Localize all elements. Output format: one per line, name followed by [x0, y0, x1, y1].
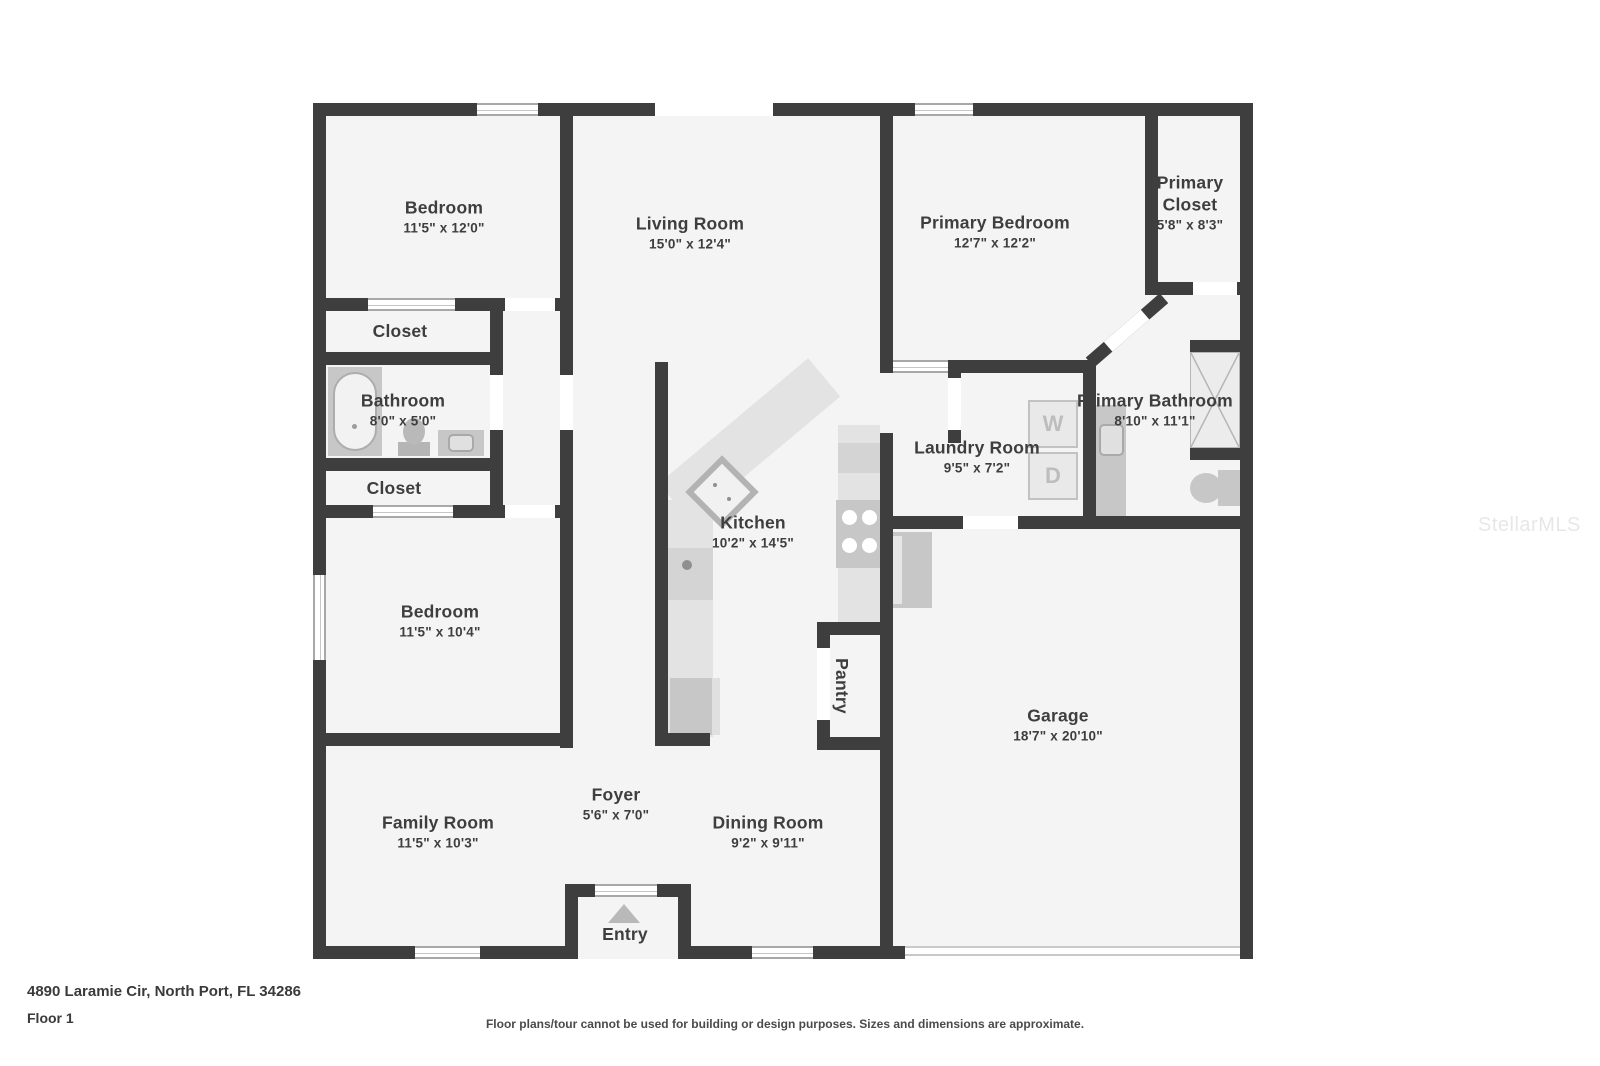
room-label-bathroom: Bathroom 8'0" x 5'0": [361, 390, 445, 431]
room-label-dining-room: Dining Room 9'2" x 9'11": [712, 812, 823, 853]
door-garage: [963, 516, 1018, 529]
door-pantry: [817, 648, 830, 720]
garage-door: [905, 946, 1240, 956]
room-label-primary-bathroom: Primary Bathroom 8'10" x 11'1": [1077, 390, 1233, 431]
door-laundry: [948, 378, 961, 430]
entry-front-door: [595, 884, 657, 897]
entry-arrow-icon: [608, 904, 640, 923]
wall-kitchen-west-stub: [655, 733, 710, 746]
door-bathroom: [490, 375, 503, 430]
wall-living-west-lower: [560, 430, 573, 748]
room-label-bedroom-1: Bedroom 11'5" x 12'0": [403, 197, 484, 238]
wall-shower-north: [1190, 340, 1240, 352]
bathroom-sink-icon: [448, 434, 474, 452]
room-label-primary-bedroom: Primary Bedroom 12'7" x 12'2": [920, 212, 1070, 253]
wall-shower-south: [1190, 448, 1240, 460]
room-label-pantry: Pantry: [831, 658, 853, 714]
bathtub-drain: [352, 424, 357, 429]
wall-bathroom-south: [313, 458, 503, 471]
island-dot: [713, 483, 717, 487]
kitchen-faucet-icon: [682, 560, 692, 570]
stove-burner: [842, 510, 857, 525]
door-primary-closet: [1193, 282, 1237, 295]
opening-living-top: [655, 103, 773, 116]
primary-toilet-icon: [1190, 473, 1222, 503]
room-label-living-room: Living Room 15'0" x 12'4": [636, 213, 744, 254]
wall-laundry-north: [961, 360, 1096, 373]
wall-garage-north: [880, 516, 1253, 529]
address-text: 4890 Laramie Cir, North Port, FL 34286: [27, 983, 301, 1000]
room-label-laundry-room: Laundry Room 9'5" x 7'2": [914, 437, 1040, 478]
room-label-foyer: Foyer 5'6" x 7'0": [583, 784, 649, 825]
stellar-mls-watermark: StellarMLS: [1478, 514, 1581, 537]
wall-pantry-north: [817, 622, 893, 635]
dryer-label: D: [1045, 463, 1061, 489]
stove-icon: [836, 500, 882, 568]
room-label-kitchen: Kitchen 10'2" x 14'5": [712, 512, 794, 553]
room-label-garage: Garage 18'7" x 20'10": [1013, 705, 1103, 746]
window-bedroom1-top: [477, 103, 538, 116]
disclaimer-text: Floor plans/tour cannot be used for buil…: [400, 1017, 1170, 1031]
room-label-closet-1: Closet: [373, 320, 428, 342]
stove-burner: [862, 510, 877, 525]
washer-label: W: [1043, 411, 1064, 437]
kitchen-sink-counter: [668, 548, 713, 600]
wall-outer-left: [313, 103, 326, 959]
wall-closet1-south: [313, 352, 503, 365]
window-family-room-bottom: [415, 946, 480, 959]
wall-garage-west: [880, 433, 893, 959]
door-bedroom2: [505, 505, 555, 518]
window-primary-bedroom-top: [915, 103, 973, 116]
garage-appliance-panel: [892, 536, 902, 604]
room-label-family-room: Family Room 11'5" x 10'3": [382, 812, 494, 853]
island-dot: [727, 497, 731, 501]
kitchen-appliance-handle: [712, 678, 720, 735]
wall-bedroom2-south: [313, 733, 573, 746]
door-hall-living: [560, 375, 573, 430]
stove-burner: [862, 538, 877, 553]
floor-plan-page: W D: [0, 0, 1600, 1066]
closet1-slider-door: [368, 298, 455, 311]
stove-burner: [842, 538, 857, 553]
door-bedroom1: [505, 298, 555, 311]
room-label-closet-2: Closet: [367, 477, 422, 499]
opening-primary-bedroom: [893, 360, 948, 373]
wall-kitchen-west: [655, 362, 668, 746]
floor-label: Floor 1: [27, 1010, 74, 1026]
room-label-bedroom-2: Bedroom 11'5" x 10'4": [399, 601, 480, 642]
wall-living-west-upper: [560, 103, 573, 375]
wall-pantry-south: [817, 737, 893, 750]
window-dining-bottom: [752, 946, 813, 959]
window-bedroom2-left: [313, 575, 326, 660]
kitchen-prep-counter: [838, 443, 880, 473]
room-label-entry: Entry: [602, 923, 648, 945]
wall-laundry-east: [1083, 360, 1096, 529]
wall-living-primary-divider: [880, 103, 893, 360]
room-label-primary-closet: Primary Closet 5'8" x 8'3": [1135, 172, 1245, 235]
closet2-slider-door: [373, 505, 453, 518]
wall-outer-top: [313, 103, 1253, 116]
